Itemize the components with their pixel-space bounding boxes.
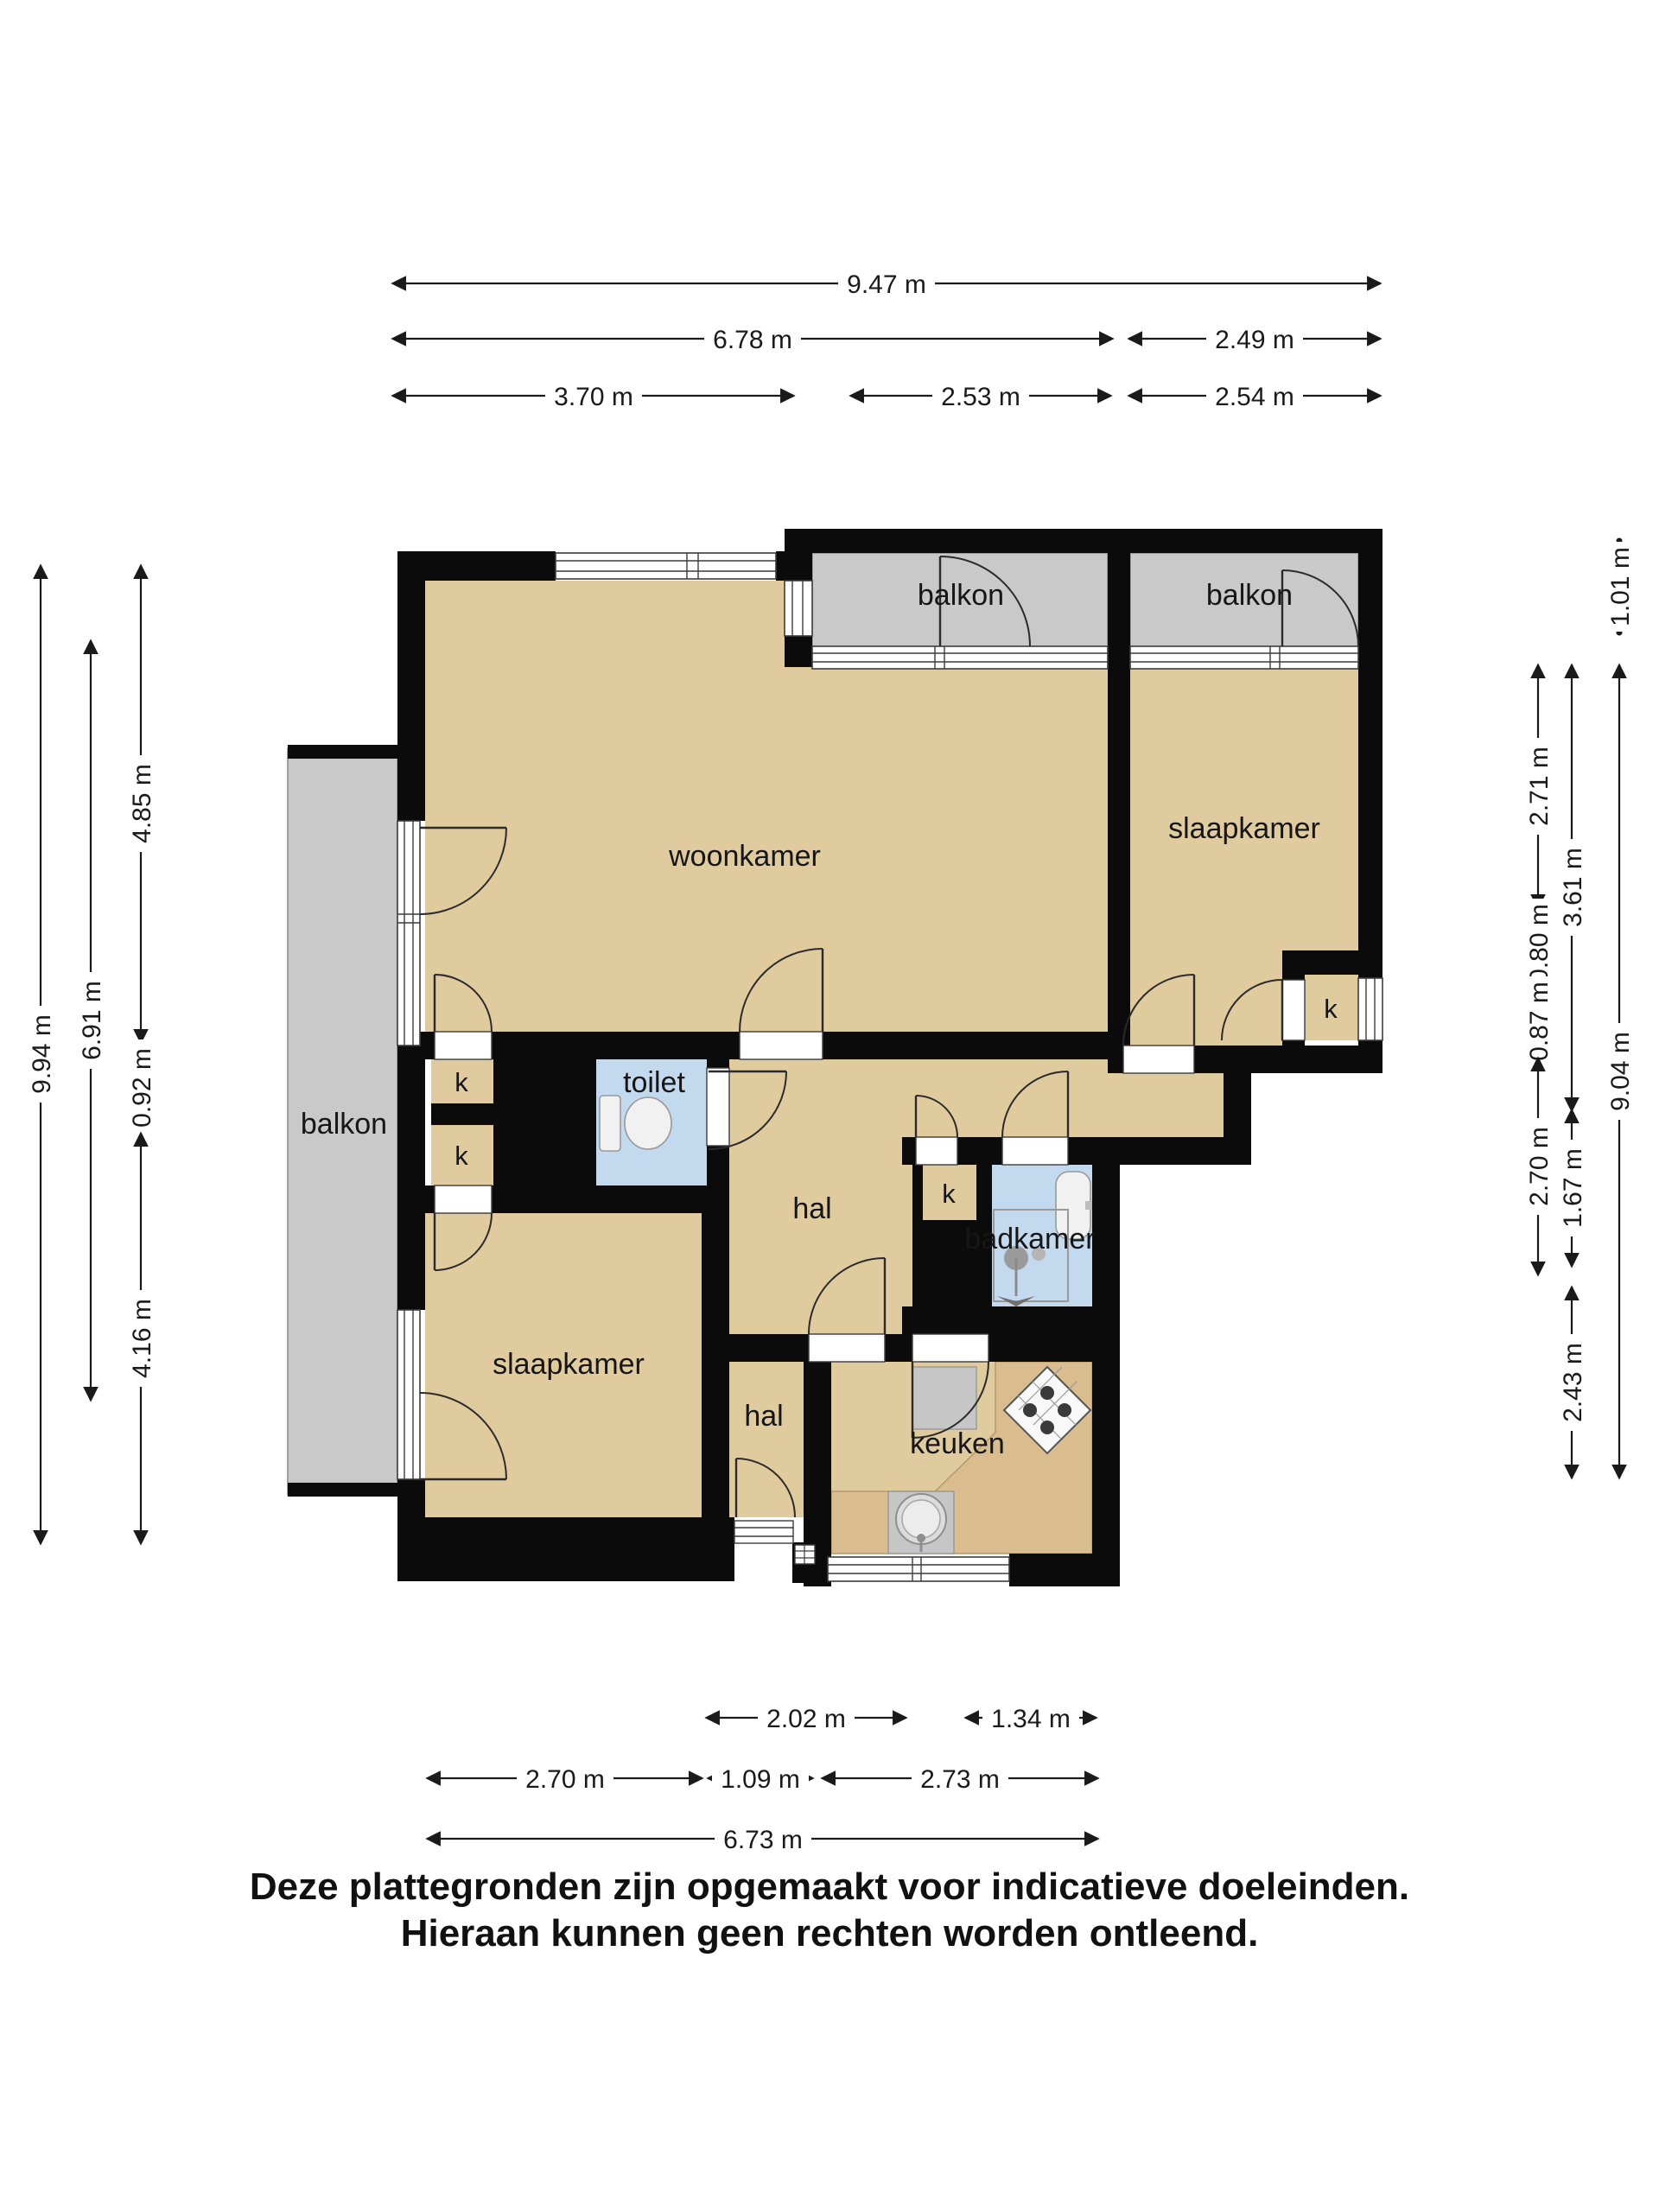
dim-249: 2.49 m [1215,326,1294,354]
disclaimer-line-1: Deze plattegronden zijn opgemaakt voor i… [250,1866,1409,1908]
label-toilet: toilet [623,1066,685,1099]
dim-673: 6.73 m [723,1826,803,1854]
door-hal-halsmall [809,1334,885,1362]
dim-485: 4.85 m [128,764,156,843]
label-kast-1: k [454,1067,468,1097]
label-balkon-left: balkon [301,1108,387,1141]
dimensions-left: 9.94 m 6.91 m 4.85 m 0.92 m 4.16 m [26,566,156,1543]
window-keuken-bottom [828,1557,1009,1581]
door-kast2 [435,1185,492,1213]
dim-270b: 2.70 m [525,1765,605,1794]
dim-370: 3.70 m [554,383,633,411]
door-hal-keuken [912,1334,988,1362]
dim-904: 9.04 m [1606,1032,1635,1111]
balcony-left-bottom-wall [288,1483,397,1497]
door-slaapkamer-right [1123,1046,1194,1073]
dim-678: 6.78 m [713,326,792,354]
balcony-left-top-wall [288,745,397,759]
dim-416: 4.16 m [128,1299,156,1378]
door-kast-mid [916,1137,957,1165]
window-left-upper [397,821,420,1046]
label-balkon-1: balkon [918,579,1004,612]
dim-271: 2.71 m [1525,747,1554,826]
dim-243: 2.43 m [1559,1343,1587,1422]
dimensions-top: 9.47 m 6.78 m 2.49 m 3.70 m 2.53 m 2.54 … [393,269,1380,411]
window-woonkamer-corner [785,581,812,636]
dim-080: 0.80 m [1525,904,1554,983]
dimensions-right: 1.01 m 2.71 m 0.80 m 0.87 m 2.70 m 3.61 … [1523,538,1635,1478]
dim-109: 1.09 m [721,1765,800,1794]
floorplan-page: woonkamer balkon balkon balkon slaapkame… [0,0,1659,2212]
washer-icon [912,1367,976,1429]
disclaimer-line-2: Hieraan kunnen geen rechten worden ontle… [401,1912,1259,1955]
label-keuken: keuken [910,1427,1005,1460]
door-kast1 [435,1032,492,1059]
dim-167: 1.67 m [1559,1148,1587,1228]
room-hal-small [729,1362,804,1517]
label-balkon-2: balkon [1206,579,1293,612]
dim-202: 2.02 m [766,1705,846,1733]
door-badkamer [1002,1137,1068,1165]
toilet-tank-icon [600,1096,620,1151]
label-badkamer: badkamer [964,1223,1095,1255]
label-slaapkamer-bottom: slaapkamer [493,1348,645,1381]
door-kast-right [1282,980,1305,1040]
dim-087: 0.87 m [1525,982,1554,1061]
label-kast-2: k [454,1141,468,1171]
label-hal-big: hal [792,1192,831,1225]
dim-361: 3.61 m [1559,848,1587,927]
label-hal-small: hal [744,1400,783,1433]
window-balcony-2 [1130,646,1358,669]
window-woonkamer-top [556,553,776,579]
label-kast-mid: k [942,1179,956,1209]
door-toilet [707,1068,729,1146]
dimensions-bottom: 2.02 m 1.34 m 2.70 m 1.09 m 2.73 m 6.73 … [428,1703,1097,1854]
dim-691: 6.91 m [78,981,106,1060]
dim-092: 0.92 m [128,1048,156,1128]
dim-270r: 2.70 m [1525,1127,1554,1206]
door-woonkamer-hal [740,1032,823,1059]
label-kast-right: k [1324,994,1338,1024]
dim-101: 1.01 m [1606,547,1635,626]
label-woonkamer: woonkamer [668,840,821,873]
dim-947: 9.47 m [847,270,926,299]
dim-253: 2.53 m [941,383,1020,411]
dim-273: 2.73 m [920,1765,1000,1794]
window-kast-right [1358,978,1382,1040]
basin-tap [1085,1201,1092,1210]
meter-box-icon [795,1545,815,1564]
floorplan-svg: woonkamer balkon balkon balkon slaapkame… [0,0,1659,2212]
dim-254: 2.54 m [1215,383,1294,411]
dim-994: 9.94 m [28,1014,56,1094]
disclaimer: Deze plattegronden zijn opgemaakt voor i… [250,1866,1409,1955]
toilet-bowl-icon [625,1097,671,1149]
window-left-lower [397,1310,420,1479]
sink-basin [902,1500,940,1538]
window-balcony-1 [812,646,1108,669]
dim-134: 1.34 m [991,1705,1071,1733]
label-slaapkamer-right: slaapkamer [1168,812,1320,845]
